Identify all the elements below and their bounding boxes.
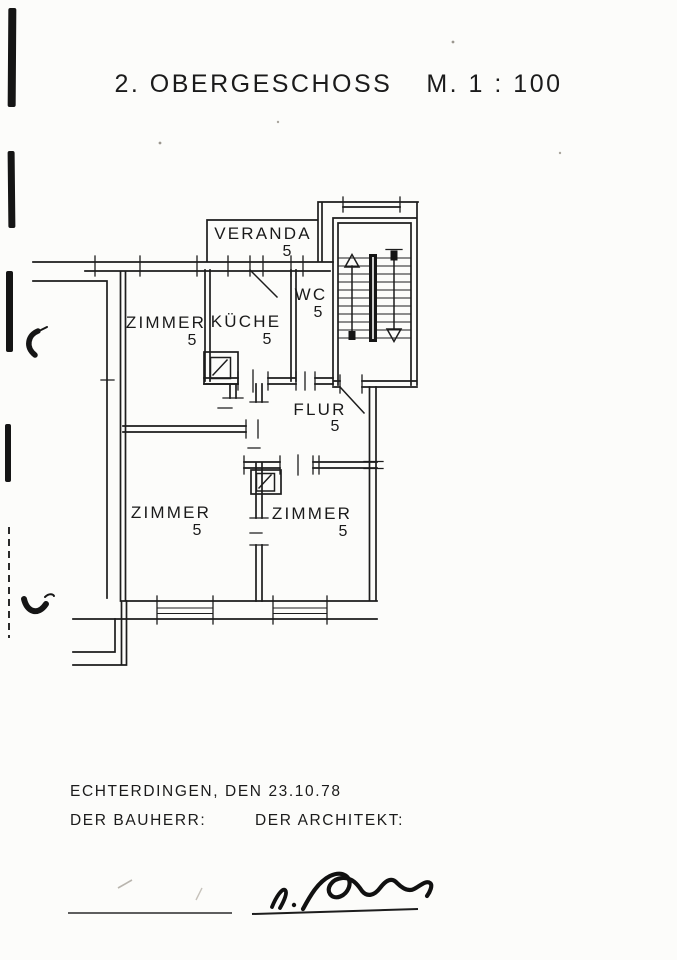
room-label-flur: FLUR [293,400,346,419]
room-number-veranda: 5 [283,243,292,260]
staircase [338,250,411,343]
window-sills [157,608,327,614]
faint-pencil-mark [196,888,202,900]
room-number-wc: 5 [314,304,323,321]
chimney-flue-symbol-kitchen [204,352,238,384]
footer-labels: DER BAUHERR: DER ARCHITEKT: [70,812,206,830]
bauherr-label: DER BAUHERR: [70,812,206,829]
room-label-zimmer-bottom-left: ZIMMER [131,503,211,522]
faint-pencil-mark [118,880,132,888]
room-number-kueche: 5 [263,331,272,348]
ink-smudge-curve-lower [24,599,46,611]
stair-up-arrow-icon [345,255,359,341]
architekt-handwritten-signature [272,874,431,909]
window-door-ticks [95,197,400,624]
room-number-flur: 5 [331,418,340,435]
room-label-zimmer-bottom-right: ZIMMER [272,504,352,523]
room-label-zimmer-top-left: ZIMMER [126,313,206,332]
room-number-zimmer-bottom-right: 5 [339,523,348,540]
scanned-floor-plan-page: 2. OBERGESCHOSS M. 1 : 100 [0,0,677,960]
architekt-signature-line [252,909,418,914]
ink-smudge-curve-upper [29,331,38,355]
scan-artifacts [5,8,561,638]
room-number-zimmer-top-left: 5 [188,332,197,349]
signature-area [68,874,431,914]
room-number-zimmer-bottom-left: 5 [193,522,202,539]
room-label-kueche: KÜCHE [211,312,282,331]
footer-place-date: ECHTERDINGEN, DEN 23.10.78 [70,783,342,801]
architekt-label: DER ARCHITEKT: [255,812,404,830]
room-label-veranda: VERANDA [214,224,312,243]
stair-down-arrow-icon [386,250,402,342]
room-label-wc: WC [295,285,328,304]
